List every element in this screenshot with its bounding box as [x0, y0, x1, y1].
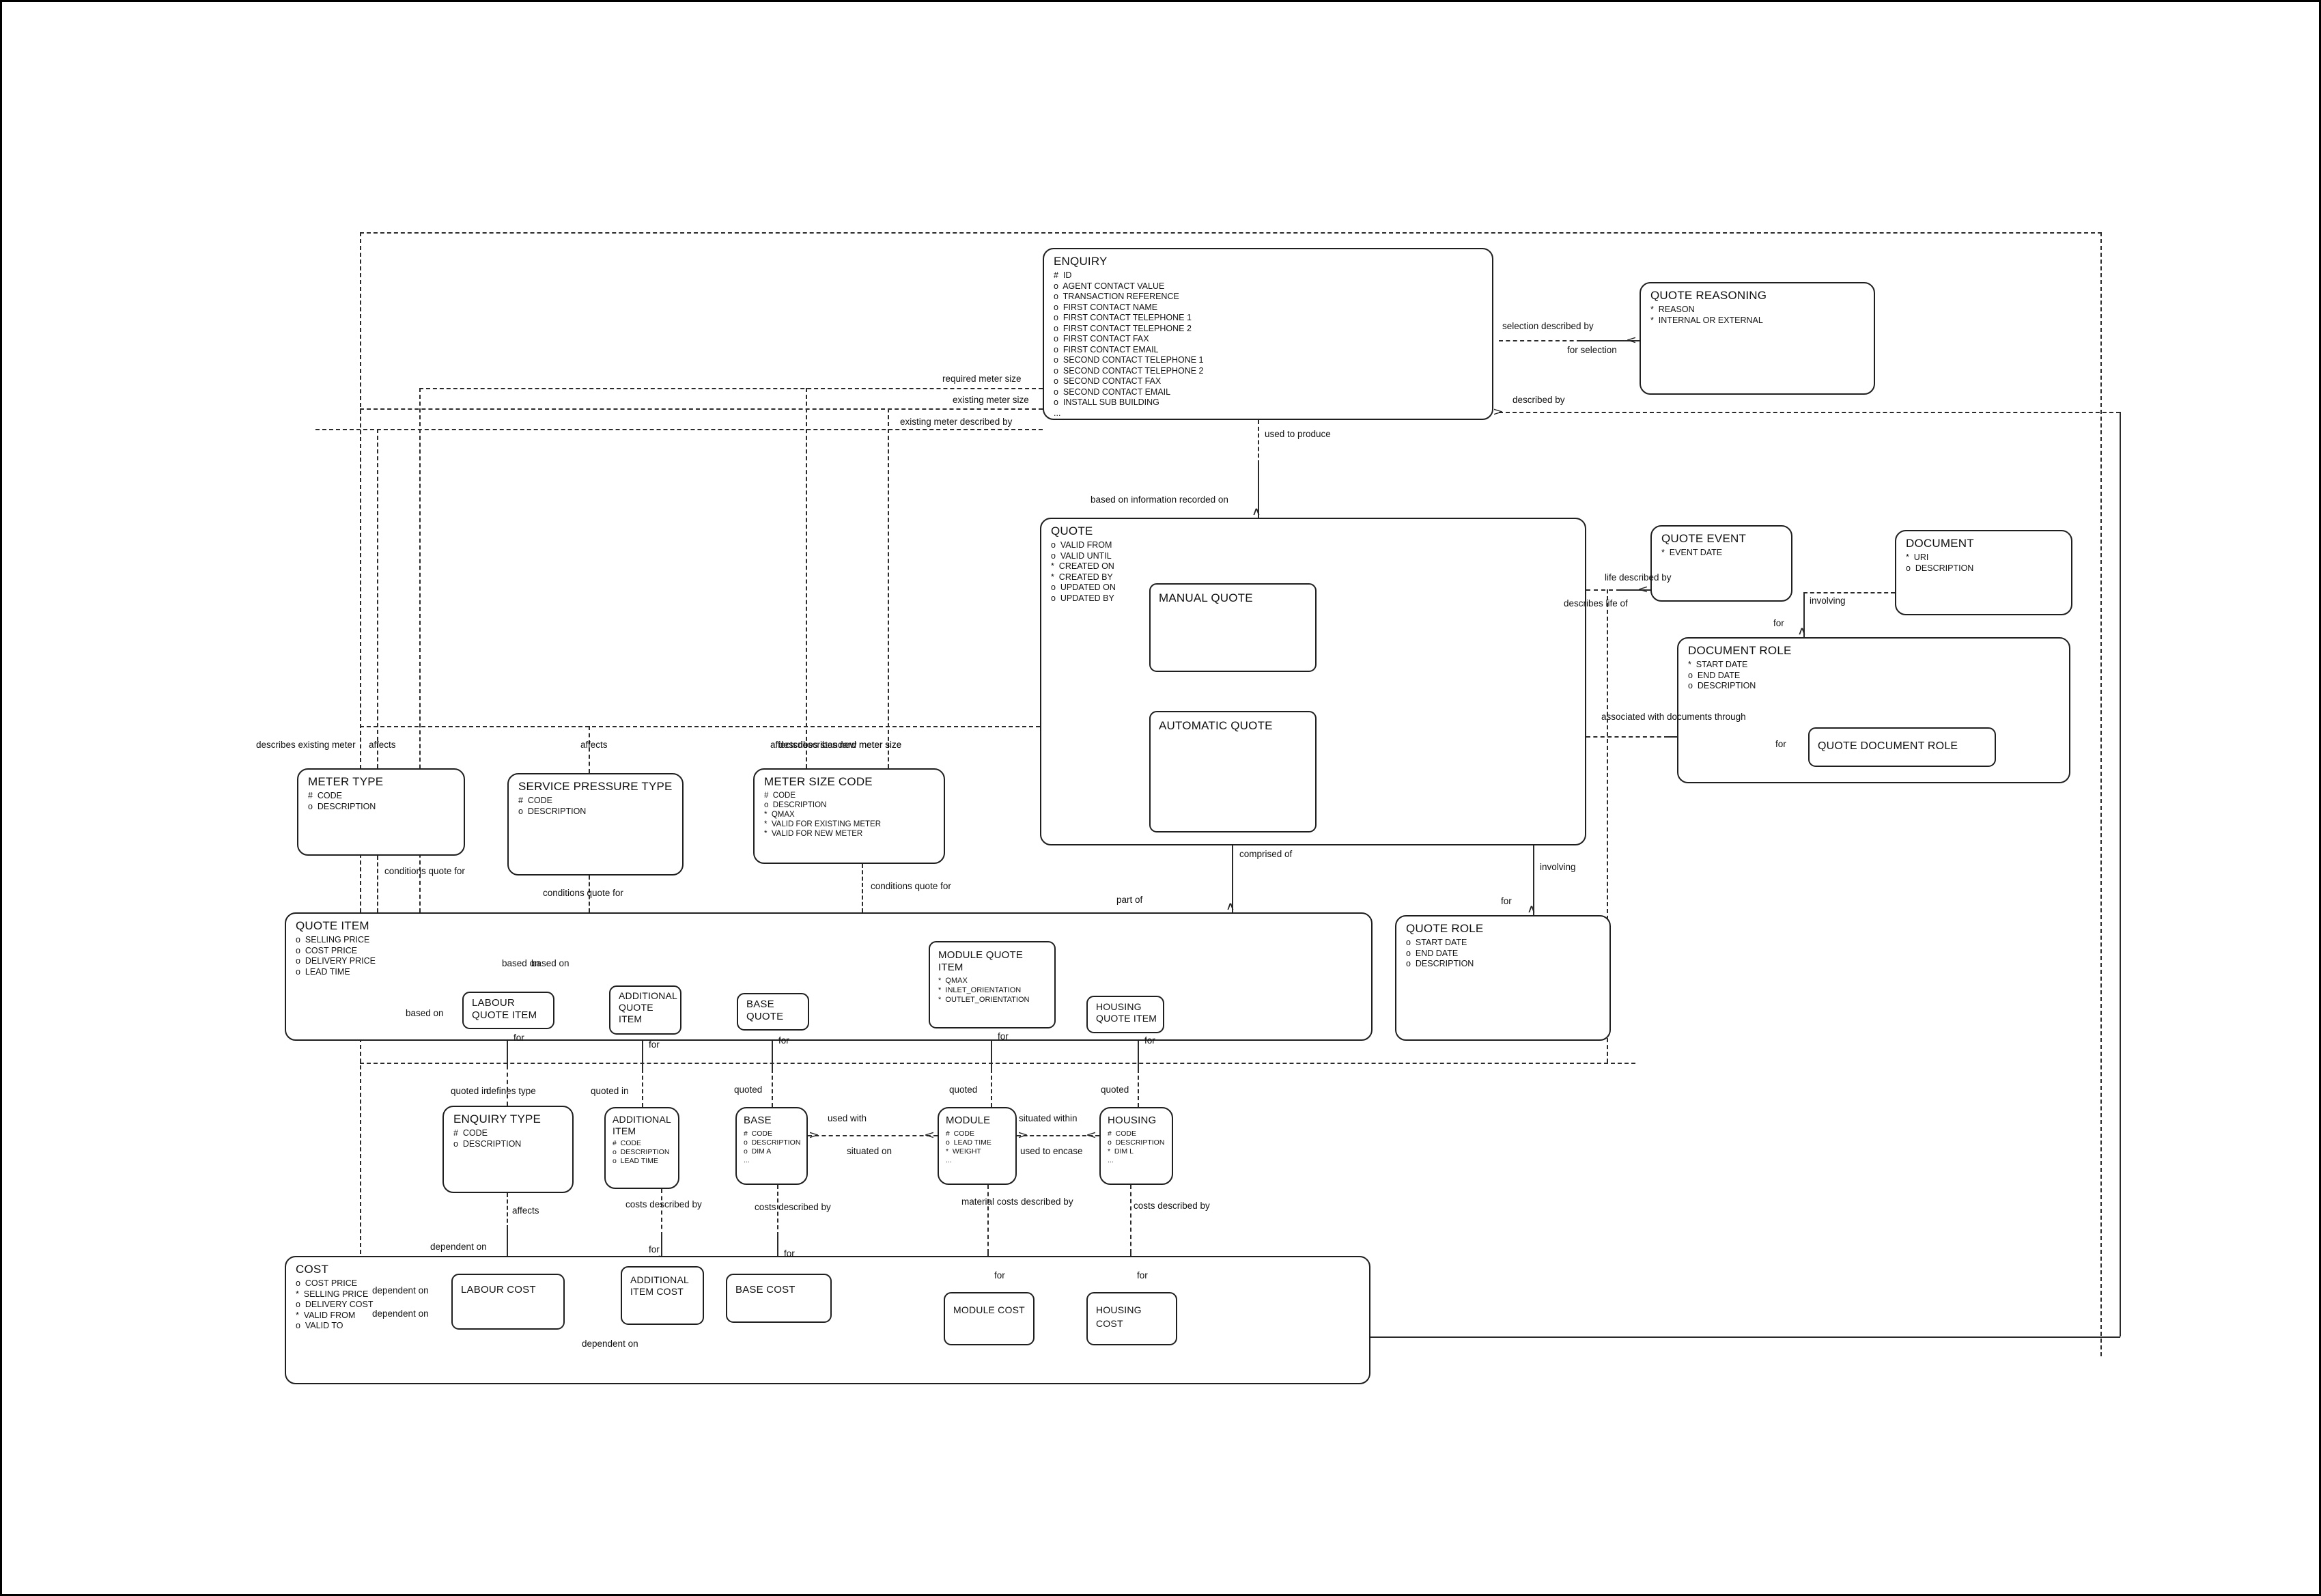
rel-label-part-of: part of — [1116, 895, 1142, 905]
entity-additional-quote-item: ADDITIONAL QUOTE ITEM — [609, 985, 681, 1035]
rel-label-life-described-by: life described by — [1605, 572, 1672, 583]
entity-attributes: o START DATEo END DATEo DESCRIPTION — [1406, 938, 1603, 970]
er-diagram-canvas: < > ∨ ∧ < < ∧ ∧ ∧ ∧ ∧ < ∨ ∨ ∨ ∨ ∨ > < > … — [0, 0, 2321, 1596]
rel-label-describes-new-meter-size: describes new meter size — [798, 740, 901, 750]
entity-title: QUOTE DOCUMENT ROLE — [1818, 740, 1989, 753]
entity-manual-quote: MANUAL QUOTE — [1149, 583, 1317, 672]
rel-label-comprised-of: comprised of — [1239, 849, 1292, 859]
entity-attribute: o SECOND CONTACT TELEPHONE 2 — [1054, 366, 1485, 377]
connector-line — [806, 388, 807, 768]
entity-attribute: o DESCRIPTION — [308, 802, 457, 813]
rel-label-affects-enquiry-type: affects — [512, 1205, 539, 1216]
entity-attribute: o DESCRIPTION — [1688, 681, 2062, 692]
entity-attributes: # CODEo DESCRIPTION — [453, 1128, 565, 1149]
entity-attributes: * START DATEo END DATEo DESCRIPTION — [1688, 660, 2062, 692]
entity-housing-cost: HOUSING COST — [1086, 1292, 1177, 1345]
entity-attribute: # CODE — [744, 1130, 800, 1138]
entity-module-cost: MODULE COST — [944, 1292, 1035, 1345]
entity-attribute: * CREATED ON — [1051, 561, 1578, 572]
connector-line — [1138, 1069, 1139, 1107]
crowfoot-right-icon: > — [808, 1130, 819, 1140]
entity-title: SERVICE PRESSURE TYPE — [518, 780, 675, 794]
entity-attribute: o DESCRIPTION — [453, 1139, 565, 1150]
rel-label-conditions-quote-for-3: conditions quote for — [871, 881, 951, 891]
connector-line — [987, 1185, 989, 1253]
rel-label-for-base-cost: for — [784, 1248, 795, 1259]
entity-attributes: # CODEo LEAD TIME* WEIGHT... — [946, 1130, 1009, 1165]
entity-title: BASE QUOTE — [746, 998, 802, 1023]
entity-title: ADDITIONAL QUOTE ITEM — [619, 990, 675, 1025]
rel-label-existing-meter-size: existing meter size — [953, 395, 1029, 405]
entity-attribute: o SECOND CONTACT EMAIL — [1054, 387, 1485, 398]
entity-attributes: * QMAX* INLET_ORIENTATION* OUTLET_ORIENT… — [938, 976, 1049, 1005]
entity-module-quote-item: MODULE QUOTE ITEM * QMAX* INLET_ORIENTAT… — [929, 941, 1056, 1028]
entity-attribute: * VALID FOR EXISTING METER — [764, 820, 937, 829]
rel-label-describes-life-of: describes life of — [1564, 598, 1628, 608]
rel-label-for-base-quote: for — [778, 1035, 789, 1046]
entity-attributes: o SELLING PRICEo COST PRICEo DELIVERY PR… — [296, 935, 1364, 977]
crowfoot-left-icon: < — [1637, 584, 1648, 595]
rel-label-used-to-encase: used to encase — [1020, 1146, 1083, 1156]
rel-label-costs-described-by-ai: costs described by — [625, 1199, 702, 1209]
entity-title: METER TYPE — [308, 775, 457, 789]
connector-line — [1586, 736, 1668, 738]
entity-attribute: ... — [744, 1156, 800, 1165]
connector-line — [2100, 232, 2102, 1356]
rel-label-situated-on: situated on — [847, 1146, 892, 1156]
rel-label-for-additional-qi: for — [649, 1039, 660, 1050]
rel-label-required-meter-size: required meter size — [942, 374, 1022, 384]
rel-label-for-module-qi: for — [998, 1031, 1009, 1041]
entity-attribute: * OUTLET_ORIENTATION — [938, 995, 1049, 1005]
entity-title: BASE COST — [735, 1283, 825, 1297]
entity-base-cost: BASE COST — [726, 1274, 832, 1323]
entity-title: QUOTE ITEM — [296, 919, 1364, 933]
rel-label-quoted-in-additional-item: quoted in — [591, 1086, 629, 1096]
entity-attributes: * EVENT DATE — [1661, 548, 1784, 559]
entity-enquiry-type: ENQUIRY TYPE # CODEo DESCRIPTION — [442, 1106, 574, 1193]
entity-attribute: o START DATE — [1406, 938, 1603, 949]
rel-label-associated-with-documents-through: associated with documents through — [1601, 712, 1746, 722]
entity-title: ENQUIRY TYPE — [453, 1112, 565, 1126]
entity-attributes: # CODEo DESCRIPTION — [518, 796, 675, 817]
rel-label-existing-meter-described-by: existing meter described by — [900, 417, 1012, 427]
rel-label-based-on-2: based on — [531, 958, 569, 968]
entity-attribute: o FIRST CONTACT NAME — [1054, 303, 1485, 313]
entity-title: DOCUMENT — [1906, 537, 2064, 550]
entity-attribute: ... — [946, 1156, 1009, 1165]
entity-attribute: o DESCRIPTION — [744, 1138, 800, 1147]
connector-line — [1499, 412, 2120, 413]
entity-title: DOCUMENT ROLE — [1688, 644, 2062, 658]
entity-title: MANUAL QUOTE — [1159, 591, 1310, 605]
entity-attribute: * QMAX — [938, 976, 1049, 985]
entity-housing: HOUSING # CODEo DESCRIPTION* DIM L... — [1099, 1107, 1173, 1185]
entity-attribute: o END DATE — [1406, 949, 1603, 960]
rel-label-quoted-module: quoted — [949, 1084, 977, 1095]
rel-label-involving-quote-role: involving — [1540, 862, 1576, 872]
connector-line — [862, 864, 863, 912]
connector-line — [360, 1063, 1635, 1064]
entity-attribute: # CODE — [308, 791, 457, 802]
rel-label-for-module-cost: for — [994, 1270, 1005, 1280]
entity-attribute: o FIRST CONTACT TELEPHONE 2 — [1054, 324, 1485, 335]
entity-meter-type: METER TYPE # CODEo DESCRIPTION — [297, 768, 465, 856]
entity-title: MODULE — [946, 1114, 1009, 1128]
entity-document: DOCUMENT * URIo DESCRIPTION — [1895, 530, 2072, 615]
rel-label-selection-described-by: selection described by — [1502, 321, 1594, 331]
connector-line — [360, 232, 2102, 234]
connector-line — [1586, 589, 1620, 591]
entity-attribute: # CODE — [1108, 1130, 1165, 1138]
rel-label-for-quote-role: for — [1501, 896, 1512, 906]
entity-labour-quote-item: LABOUR QUOTE ITEM — [462, 992, 554, 1029]
entity-title: ADDITIONAL ITEM — [613, 1114, 671, 1137]
entity-attribute: # CODE — [946, 1130, 1009, 1138]
entity-housing-quote-item: HOUSING QUOTE ITEM — [1086, 996, 1164, 1033]
connector-line — [2120, 412, 2121, 1336]
rel-label-quoted-housing: quoted — [1101, 1084, 1129, 1095]
entity-title: HOUSING COST — [1096, 1303, 1170, 1330]
rel-label-for-labour-qi: for — [514, 1033, 524, 1043]
entity-title: METER SIZE CODE — [764, 775, 937, 789]
rel-label-for-additional-item-cost: for — [649, 1244, 660, 1255]
entity-title: HOUSING QUOTE ITEM — [1096, 1001, 1157, 1024]
entity-attribute: o DESCRIPTION — [1906, 563, 2064, 574]
entity-attribute: o TRANSACTION REFERENCE — [1054, 292, 1485, 303]
entity-title: MODULE QUOTE ITEM — [938, 949, 1049, 974]
entity-service-pressure-type: SERVICE PRESSURE TYPE # CODEo DESCRIPTIO… — [507, 773, 684, 876]
crowfoot-right-icon: > — [1493, 406, 1504, 417]
entity-title: ADDITIONAL ITEM COST — [630, 1274, 697, 1298]
connector-line — [661, 1189, 662, 1236]
crowfoot-left-icon: < — [1626, 335, 1637, 346]
entity-title: LABOUR QUOTE ITEM — [472, 997, 548, 1022]
entity-title: BASE — [744, 1114, 800, 1128]
entity-title: QUOTE — [1051, 524, 1578, 538]
connector-line — [360, 726, 1040, 727]
entity-quote-role: QUOTE ROLE o START DATEo END DATEo DESCR… — [1395, 915, 1611, 1041]
connector-line — [360, 408, 1043, 410]
entity-quote-event: QUOTE EVENT * EVENT DATE — [1650, 525, 1792, 602]
entity-attribute: o DELIVERY PRICE — [296, 956, 1364, 967]
entity-attributes: # CODEo DESCRIPTION — [308, 791, 457, 812]
entity-base: BASE # CODEo DESCRIPTIONo DIM A... — [735, 1107, 808, 1185]
entity-attribute: o SECOND CONTACT FAX — [1054, 376, 1485, 387]
entity-attribute: o AGENT CONTACT VALUE — [1054, 281, 1485, 292]
entity-title: QUOTE EVENT — [1661, 532, 1784, 546]
entity-attribute: o FIRST CONTACT FAX — [1054, 334, 1485, 345]
entity-attributes: # CODEo DESCRIPTIONo LEAD TIME — [613, 1139, 671, 1166]
entity-title: ENQUIRY — [1054, 255, 1485, 268]
entity-attributes: # CODEo DESCRIPTION* QMAX* VALID FOR EXI… — [764, 791, 937, 839]
entity-quote-document-role: QUOTE DOCUMENT ROLE — [1808, 727, 1996, 767]
entity-attribute: o VALID FROM — [1051, 540, 1578, 551]
rel-label-defines-type: defines type — [486, 1086, 536, 1096]
entity-attribute: * INLET_ORIENTATION — [938, 985, 1049, 995]
entity-attribute: * DIM L — [1108, 1147, 1165, 1156]
entity-attribute: o END DATE — [1688, 671, 2062, 682]
entity-attribute: o FIRST CONTACT EMAIL — [1054, 345, 1485, 356]
crowfoot-left-icon: < — [924, 1130, 935, 1140]
entity-quote-item: QUOTE ITEM o SELLING PRICEo COST PRICEo … — [285, 912, 1373, 1041]
rel-label-for-document: for — [1773, 618, 1784, 628]
entity-quote-reasoning: QUOTE REASONING * REASON* INTERNAL OR EX… — [1640, 282, 1875, 395]
rel-label-quoted-base: quoted — [734, 1084, 762, 1095]
entity-attributes: # IDo AGENT CONTACT VALUEo TRANSACTION R… — [1054, 270, 1485, 419]
connector-line — [1130, 1185, 1131, 1253]
rel-label-described-by: described by — [1513, 395, 1565, 405]
entity-attribute: ... — [1054, 408, 1485, 419]
entity-attribute: o SELLING PRICE — [296, 935, 1364, 946]
entity-attribute: # CODE — [518, 796, 675, 807]
entity-attribute: o DESCRIPTION — [518, 807, 675, 817]
entity-labour-cost: LABOUR COST — [451, 1274, 565, 1330]
entity-additional-item: ADDITIONAL ITEM # CODEo DESCRIPTIONo LEA… — [604, 1107, 679, 1189]
entity-attributes: # CODEo DESCRIPTIONo DIM A... — [744, 1130, 800, 1165]
entity-attribute: o DIM A — [744, 1147, 800, 1156]
connector-line — [772, 1069, 773, 1107]
entity-attribute: # CODE — [764, 791, 937, 800]
rel-label-dependent-on-bottom: dependent on — [582, 1339, 638, 1349]
entity-attributes: * URIo DESCRIPTION — [1906, 552, 2064, 574]
entity-attribute: o LEAD TIME — [613, 1157, 671, 1166]
crowfoot-up-icon: ∧ — [1226, 901, 1235, 912]
entity-title: MODULE COST — [953, 1303, 1028, 1317]
entity-additional-item-cost: ADDITIONAL ITEM COST — [621, 1266, 704, 1325]
connector-line — [377, 429, 378, 768]
rel-label-based-on-3: based on — [406, 1008, 444, 1018]
entity-cost: COST o COST PRICE* SELLING PRICEo DELIVE… — [285, 1256, 1370, 1384]
entity-attribute: * WEIGHT — [946, 1147, 1009, 1156]
rel-label-material-costs-described-by: material costs described by — [961, 1196, 1073, 1207]
connector-line — [642, 1069, 643, 1107]
entity-attributes: # CODEo DESCRIPTION* DIM L... — [1108, 1130, 1165, 1165]
entity-title: LABOUR COST — [461, 1283, 558, 1297]
rel-label-involving-document: involving — [1810, 596, 1846, 606]
rel-label-for-selection: for selection — [1567, 345, 1617, 355]
rel-label-conditions-quote-for-2: conditions quote for — [543, 888, 623, 898]
connector-line — [991, 1069, 992, 1107]
entity-automatic-quote: AUTOMATIC QUOTE — [1149, 711, 1317, 832]
rel-label-dependent-on-1: dependent on — [372, 1285, 429, 1296]
entity-attribute: o FIRST CONTACT TELEPHONE 1 — [1054, 313, 1485, 324]
rel-label-quoted-in-enquiry-type: quoted in — [451, 1086, 489, 1096]
entity-attribute: * START DATE — [1688, 660, 2062, 671]
rel-label-costs-described-by-base: costs described by — [755, 1202, 831, 1212]
entity-attribute: ... — [1108, 1156, 1165, 1165]
rel-label-used-to-produce: used to produce — [1265, 429, 1331, 439]
entity-attribute: * REASON — [1650, 305, 1867, 316]
entity-quote: QUOTE o VALID FROMo VALID UNTIL* CREATED… — [1040, 518, 1586, 845]
connector-line — [888, 408, 889, 768]
crowfoot-left-icon: < — [1086, 1130, 1097, 1140]
entity-attribute: * INTERNAL OR EXTERNAL — [1650, 316, 1867, 326]
connector-line — [419, 388, 1043, 389]
rel-label-describes-existing-meter: describes existing meter — [256, 740, 356, 750]
entity-attribute: * VALID FOR NEW METER — [764, 829, 937, 839]
connector-line — [315, 429, 1043, 430]
rel-label-for-housing-qi: for — [1144, 1035, 1155, 1046]
connector-line — [1258, 420, 1259, 464]
entity-title: QUOTE ROLE — [1406, 922, 1603, 936]
entity-document-role: DOCUMENT ROLE * START DATEo END DATEo DE… — [1677, 637, 2070, 783]
entity-title: HOUSING — [1108, 1114, 1165, 1128]
entity-attribute: o SECOND CONTACT TELEPHONE 1 — [1054, 355, 1485, 366]
entity-title: AUTOMATIC QUOTE — [1159, 719, 1310, 733]
entity-attribute: o DESCRIPTION — [1108, 1138, 1165, 1147]
entity-attribute: o VALID UNTIL — [1051, 551, 1578, 562]
entity-attribute: o COST PRICE — [296, 946, 1364, 957]
rel-label-for-quote-document-role: for — [1775, 739, 1786, 749]
rel-label-affects-service-pressure: affects — [580, 740, 608, 750]
rel-label-used-with: used with — [828, 1113, 867, 1123]
crowfoot-right-icon: > — [1017, 1130, 1028, 1140]
entity-attribute: o DESCRIPTION — [613, 1148, 671, 1157]
rel-label-affects-meter-type: affects — [369, 740, 396, 750]
connector-line — [808, 1135, 938, 1136]
rel-label-situated-within: situated within — [1019, 1113, 1078, 1123]
connector-line — [1803, 592, 1895, 593]
entity-attribute: # CODE — [453, 1128, 565, 1139]
crowfoot-up-icon: ∧ — [1252, 506, 1261, 517]
entity-enquiry: ENQUIRY # IDo AGENT CONTACT VALUEo TRANS… — [1043, 248, 1493, 420]
connector-line — [1499, 340, 1581, 341]
rel-label-dependent-on-2: dependent on — [372, 1308, 429, 1319]
rel-label-conditions-quote-for-1: conditions quote for — [384, 866, 465, 876]
rel-label-for-housing-cost: for — [1137, 1270, 1148, 1280]
crowfoot-up-icon: ∧ — [1527, 904, 1536, 914]
entity-attribute: # CODE — [613, 1139, 671, 1148]
entity-meter-size-code: METER SIZE CODE # CODEo DESCRIPTION* QMA… — [753, 768, 945, 864]
entity-attribute: o INSTALL SUB BUILDING — [1054, 397, 1485, 408]
entity-attribute: o DESCRIPTION — [764, 800, 937, 810]
connector-line — [377, 856, 378, 912]
entity-attribute: * URI — [1906, 552, 2064, 563]
rel-label-dependent-on-top: dependent on — [430, 1242, 487, 1252]
entity-attributes: * REASON* INTERNAL OR EXTERNAL — [1650, 305, 1867, 326]
rel-label-costs-described-by-housing: costs described by — [1134, 1201, 1210, 1211]
entity-attribute: * EVENT DATE — [1661, 548, 1784, 559]
entity-title: QUOTE REASONING — [1650, 289, 1867, 303]
entity-attribute: o DESCRIPTION — [1406, 959, 1603, 970]
entity-module: MODULE # CODEo LEAD TIME* WEIGHT... — [938, 1107, 1017, 1185]
entity-attribute: * CREATED BY — [1051, 572, 1578, 583]
entity-attribute: o LEAD TIME — [946, 1138, 1009, 1147]
entity-attribute: o LEAD TIME — [296, 967, 1364, 978]
entity-attribute: # ID — [1054, 270, 1485, 281]
entity-base-quote: BASE QUOTE — [737, 993, 809, 1031]
entity-attribute: * QMAX — [764, 810, 937, 820]
crowfoot-up-icon: ∧ — [1797, 626, 1807, 636]
connector-line — [507, 1193, 508, 1229]
rel-label-based-on-information-recorded-on: based on information recorded on — [1091, 494, 1228, 505]
